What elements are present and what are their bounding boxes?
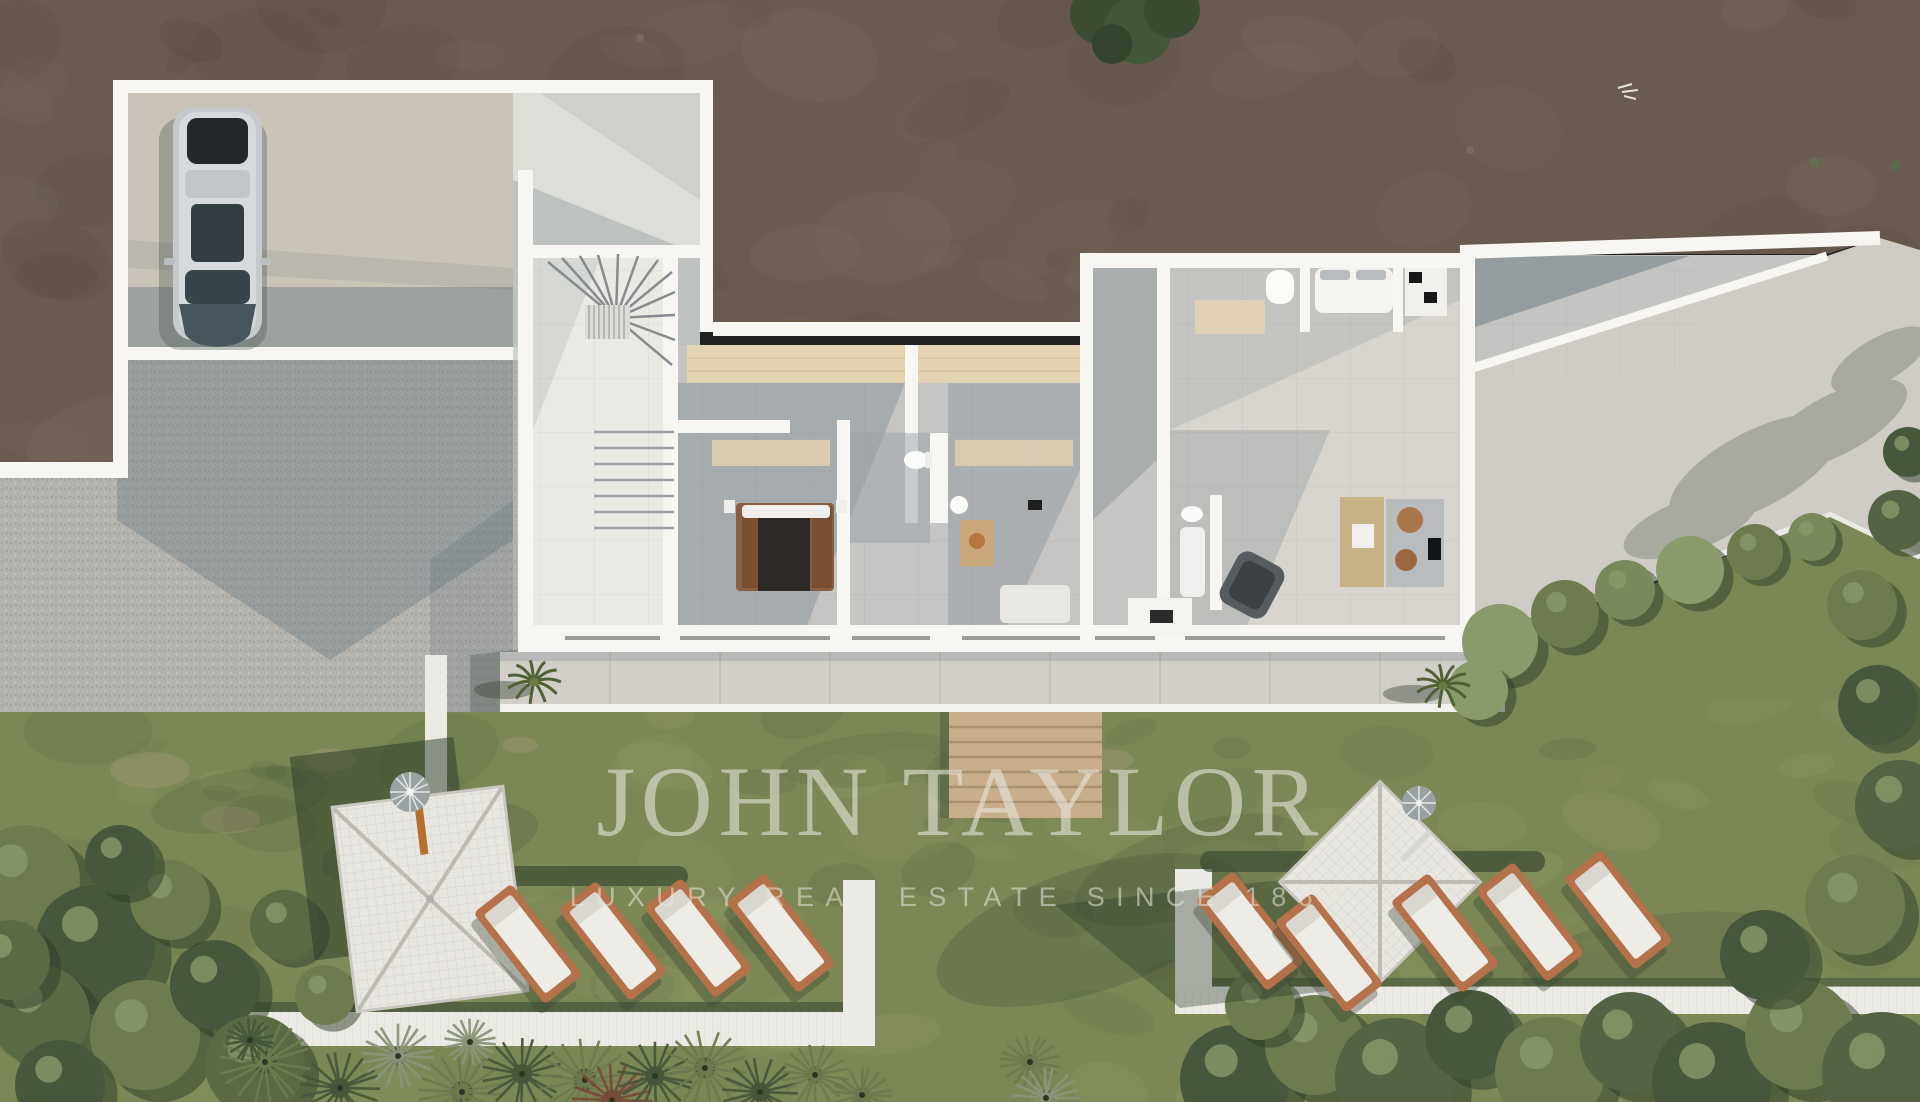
nightstand — [724, 500, 735, 513]
wall-suite1-east — [837, 420, 850, 642]
wall-corridor-east — [1157, 268, 1170, 642]
wooden-steps — [940, 712, 1102, 818]
bench — [1000, 585, 1070, 623]
stair-hall-north-wall — [533, 245, 700, 258]
stair-landing — [585, 305, 630, 339]
stool — [950, 496, 968, 514]
sink — [1424, 292, 1437, 303]
decor-plate — [969, 533, 985, 549]
tray — [1150, 610, 1173, 623]
toilet — [1181, 506, 1203, 522]
rattan-decor — [1395, 549, 1417, 571]
wall-suite1-north — [678, 420, 790, 433]
nightstand — [836, 500, 847, 513]
garage-north-wall — [113, 80, 700, 93]
cooktop — [1409, 272, 1422, 283]
bed-pillow — [1320, 270, 1350, 280]
car-rear-window — [187, 118, 248, 164]
bathtub — [1266, 270, 1294, 304]
wall-kitchen — [1393, 268, 1403, 332]
white-tray — [1352, 524, 1374, 548]
car-sunroof — [191, 204, 244, 262]
headboard-shelf-1 — [712, 440, 830, 466]
rattan-decor — [1397, 507, 1423, 533]
toilet — [904, 451, 928, 469]
wardrobe-travertine — [1195, 300, 1265, 334]
wall-bath1-side — [930, 433, 948, 523]
north-terrace-travertine-1 — [687, 345, 905, 383]
bed-blanket — [758, 506, 810, 591]
bed-pillows — [742, 505, 830, 518]
white-bench — [1180, 527, 1205, 597]
north-wall-mid — [713, 322, 1093, 336]
decor-box — [1028, 500, 1042, 510]
car-mirror-right — [260, 258, 271, 265]
bed-pillow — [1356, 270, 1386, 280]
bedroom1 — [724, 500, 847, 591]
scene-canvas — [0, 0, 1920, 1102]
boundary-wall-stub — [0, 462, 117, 478]
path-connector-left — [843, 880, 875, 1046]
terrace-curb — [500, 704, 1505, 712]
south-terrace — [500, 645, 1505, 712]
aerial-villa-render: JOHN TAYLOR LUXURY REAL ESTATE SINCE 186… — [0, 0, 1920, 1102]
house-step-wall — [700, 80, 713, 332]
parked-car — [159, 108, 271, 350]
bathroom1 — [850, 433, 932, 543]
parasol-left — [390, 772, 430, 812]
north-wall-east — [1080, 253, 1460, 268]
wall-bed-room — [1300, 268, 1310, 332]
stair-hall-west-wall — [518, 170, 533, 655]
fireplace — [1428, 538, 1441, 560]
north-terrace-travertine-2 — [918, 345, 1080, 383]
east-wall — [1460, 253, 1475, 652]
garage-west-wall — [113, 80, 128, 478]
bath-floor — [850, 433, 930, 543]
parasol-right — [1402, 786, 1436, 820]
headboard-shelf-2 — [955, 440, 1073, 466]
car-mirror-left — [164, 258, 175, 265]
car-windshield — [185, 270, 250, 304]
wall-corridor-west — [1080, 253, 1093, 642]
